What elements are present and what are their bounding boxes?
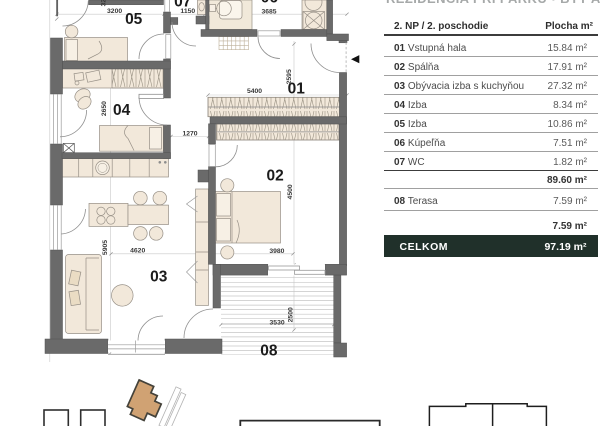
svg-text:06: 06 (261, 0, 279, 7)
svg-text:3530: 3530 (270, 320, 285, 327)
svg-text:4620: 4620 (130, 247, 145, 254)
svg-text:3685: 3685 (261, 8, 276, 15)
svg-text:05: 05 (125, 11, 143, 28)
svg-text:2500: 2500 (287, 307, 294, 322)
svg-text:5400: 5400 (247, 88, 262, 95)
svg-text:3200: 3200 (107, 8, 122, 15)
svg-text:1270: 1270 (182, 130, 197, 137)
svg-text:32: 32 (101, 0, 108, 6)
svg-text:2650: 2650 (101, 101, 108, 116)
svg-text:1150: 1150 (180, 8, 195, 15)
svg-text:08: 08 (260, 343, 278, 360)
svg-text:04: 04 (113, 102, 131, 119)
svg-text:5905: 5905 (102, 240, 109, 255)
svg-text:2595: 2595 (286, 69, 293, 84)
svg-text:3980: 3980 (269, 248, 284, 255)
svg-text:03: 03 (150, 269, 168, 286)
svg-text:4500: 4500 (287, 184, 294, 199)
svg-text:02: 02 (266, 167, 283, 184)
